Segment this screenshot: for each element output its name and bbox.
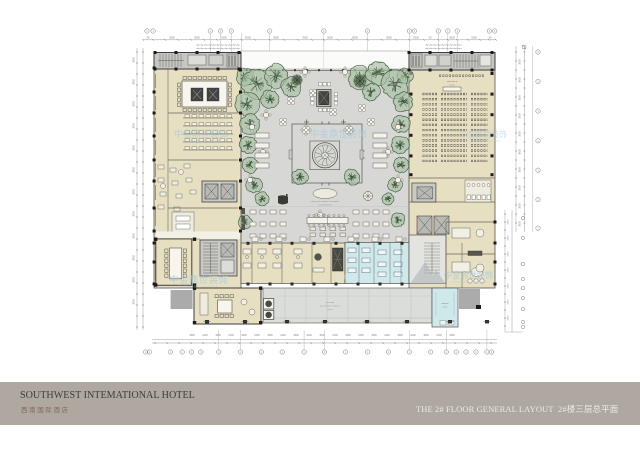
svg-text:3900: 3900 <box>519 221 522 227</box>
svg-text:2400: 2400 <box>436 334 442 337</box>
svg-text:3300: 3300 <box>471 35 477 39</box>
svg-text:2400: 2400 <box>508 299 510 305</box>
svg-text:3900: 3900 <box>519 59 522 65</box>
svg-text:2400: 2400 <box>254 334 260 337</box>
svg-text:1800: 1800 <box>293 334 299 337</box>
svg-text:3900: 3900 <box>519 95 522 101</box>
svg-text:3300: 3300 <box>169 35 175 39</box>
svg-text:xxxx xxxx xxxxxxx x xxxxxxxx: xxxx xxxx xxxxxxx x xxxxxxxx <box>311 201 341 203</box>
svg-text:ZHONGJIN DINGSHI: ZHONGJIN DINGSHI <box>182 139 222 143</box>
svg-text:xxxxxxx: xxxxxxx <box>442 303 449 305</box>
svg-text:xxxx xxx xx: xxxx xxx xx <box>446 81 458 83</box>
svg-text:3900: 3900 <box>519 185 522 191</box>
svg-text:8000: 8000 <box>245 35 251 39</box>
svg-text:2400: 2400 <box>508 267 510 273</box>
svg-text:3900: 3900 <box>133 233 136 239</box>
svg-text:3900: 3900 <box>133 145 136 151</box>
svg-text:2400: 2400 <box>358 334 364 337</box>
svg-text:3900: 3900 <box>133 101 136 107</box>
svg-text:3900: 3900 <box>519 167 522 173</box>
svg-text:2400: 2400 <box>508 219 510 225</box>
svg-text:1800: 1800 <box>345 334 351 337</box>
svg-text:3900: 3900 <box>194 35 200 39</box>
svg-text:3900: 3900 <box>133 211 136 217</box>
svg-text:3900: 3900 <box>273 35 279 39</box>
svg-text:3900: 3900 <box>449 35 455 39</box>
svg-text:2400: 2400 <box>228 334 234 337</box>
svg-text:3900: 3900 <box>133 167 136 173</box>
svg-text:中金鼎世装饰: 中金鼎世装饰 <box>459 129 507 140</box>
svg-text:2400: 2400 <box>508 315 510 321</box>
svg-text:1800: 1800 <box>371 334 377 337</box>
svg-text:中金鼎世装饰: 中金鼎世装饰 <box>310 128 367 141</box>
svg-text:2400: 2400 <box>332 334 338 337</box>
svg-text:2400: 2400 <box>306 334 312 337</box>
svg-text:1800: 1800 <box>397 334 403 337</box>
svg-text:中金鼎世装饰: 中金鼎世装饰 <box>444 270 493 281</box>
svg-text:中金鼎世装饰: 中金鼎世装饰 <box>169 274 228 286</box>
svg-text:7800: 7800 <box>302 35 308 39</box>
svg-text:3900: 3900 <box>519 203 522 209</box>
svg-text:3900: 3900 <box>133 57 136 63</box>
svg-text:1800: 1800 <box>241 334 247 337</box>
svg-text:3900: 3900 <box>386 35 392 39</box>
svg-text:8000: 8000 <box>352 35 358 39</box>
svg-text:1800: 1800 <box>215 334 221 337</box>
svg-text:3900: 3900 <box>519 77 522 83</box>
svg-text:3900: 3900 <box>133 299 136 305</box>
svg-text:中金鼎世装饰: 中金鼎世装饰 <box>335 272 405 284</box>
svg-text:3900: 3900 <box>519 149 522 155</box>
svg-text:ZHONGJIN DINGSHI: ZHONGJIN DINGSHI <box>466 140 500 143</box>
svg-text:3900: 3900 <box>519 131 522 137</box>
svg-text:ZHONGJIN DINGSHI: ZHONGJIN DINGSHI <box>178 285 218 289</box>
svg-text:1800: 1800 <box>449 334 455 337</box>
svg-text:2400: 2400 <box>410 334 416 337</box>
svg-text:3300: 3300 <box>413 35 419 39</box>
svg-text:3900: 3900 <box>133 255 136 261</box>
svg-text:中金鼎世装饰: 中金鼎世装饰 <box>174 129 228 141</box>
svg-text:3900: 3900 <box>133 189 136 195</box>
svg-text:3900: 3900 <box>133 277 136 283</box>
svg-text:1800: 1800 <box>423 334 429 337</box>
svg-text:ZHONGJIN DINGSHI: ZHONGJIN DINGSHI <box>338 141 367 145</box>
svg-text:2400: 2400 <box>508 283 510 289</box>
svg-text:2400: 2400 <box>508 251 510 257</box>
svg-text:xxx xxxx: xxx xxxx <box>326 302 335 304</box>
svg-text:xx xx: xx xx <box>443 307 448 309</box>
svg-text:3900: 3900 <box>133 79 136 85</box>
svg-text:xxxxxxxxxxxx: xxxxxxxxxxxx <box>318 205 332 207</box>
svg-text:3900: 3900 <box>133 123 136 129</box>
svg-text:3300: 3300 <box>221 35 227 39</box>
svg-text:3900: 3900 <box>327 35 333 39</box>
svg-text:1800: 1800 <box>267 334 273 337</box>
svg-text:2400: 2400 <box>280 334 286 337</box>
svg-text:2400: 2400 <box>202 334 208 337</box>
svg-text:1800: 1800 <box>189 334 195 337</box>
svg-text:3900: 3900 <box>519 113 522 119</box>
svg-text:2400: 2400 <box>508 235 510 241</box>
svg-text:xxx xxxxxx x xxxxx x: xxx xxxxxx x xxxxx x <box>320 306 341 308</box>
svg-text:2400: 2400 <box>384 334 390 337</box>
svg-text:ZHONGJIN DINGSHI: ZHONGJIN DINGSHI <box>452 280 486 284</box>
